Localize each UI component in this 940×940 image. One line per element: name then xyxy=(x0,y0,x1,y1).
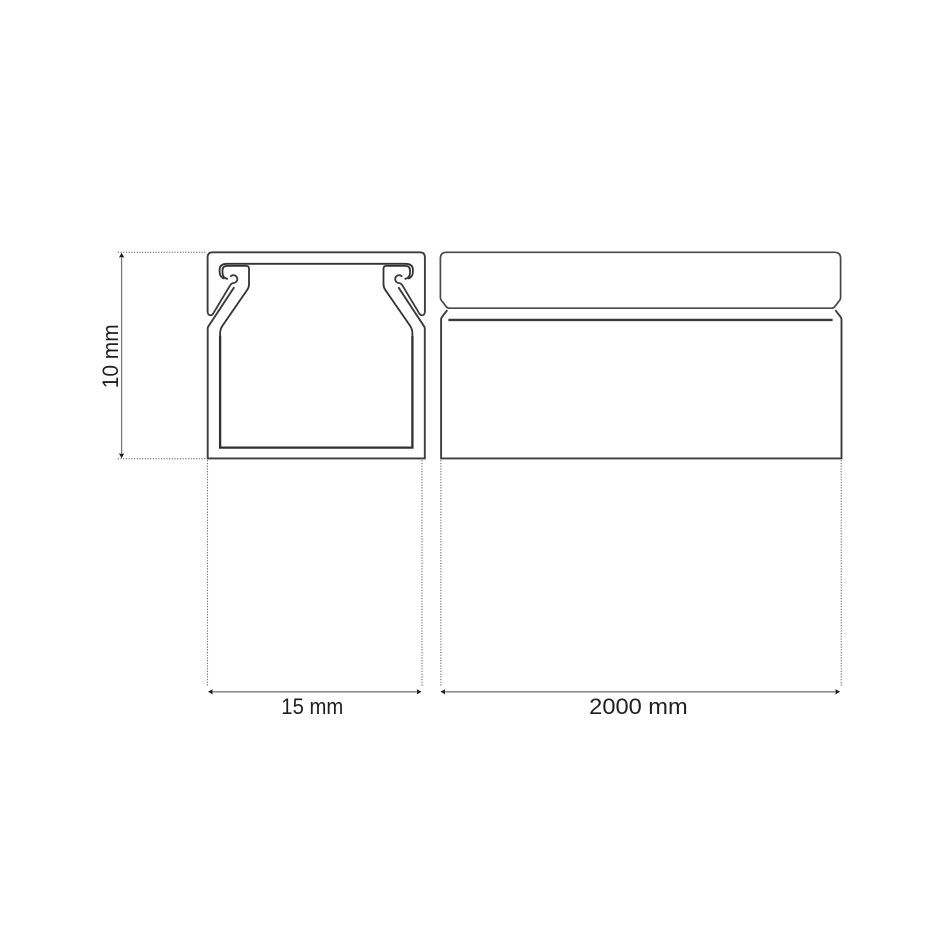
svg-text:10 mm: 10 mm xyxy=(98,324,123,388)
svg-text:2000 mm: 2000 mm xyxy=(589,694,688,719)
svg-text:15 mm: 15 mm xyxy=(281,694,343,719)
